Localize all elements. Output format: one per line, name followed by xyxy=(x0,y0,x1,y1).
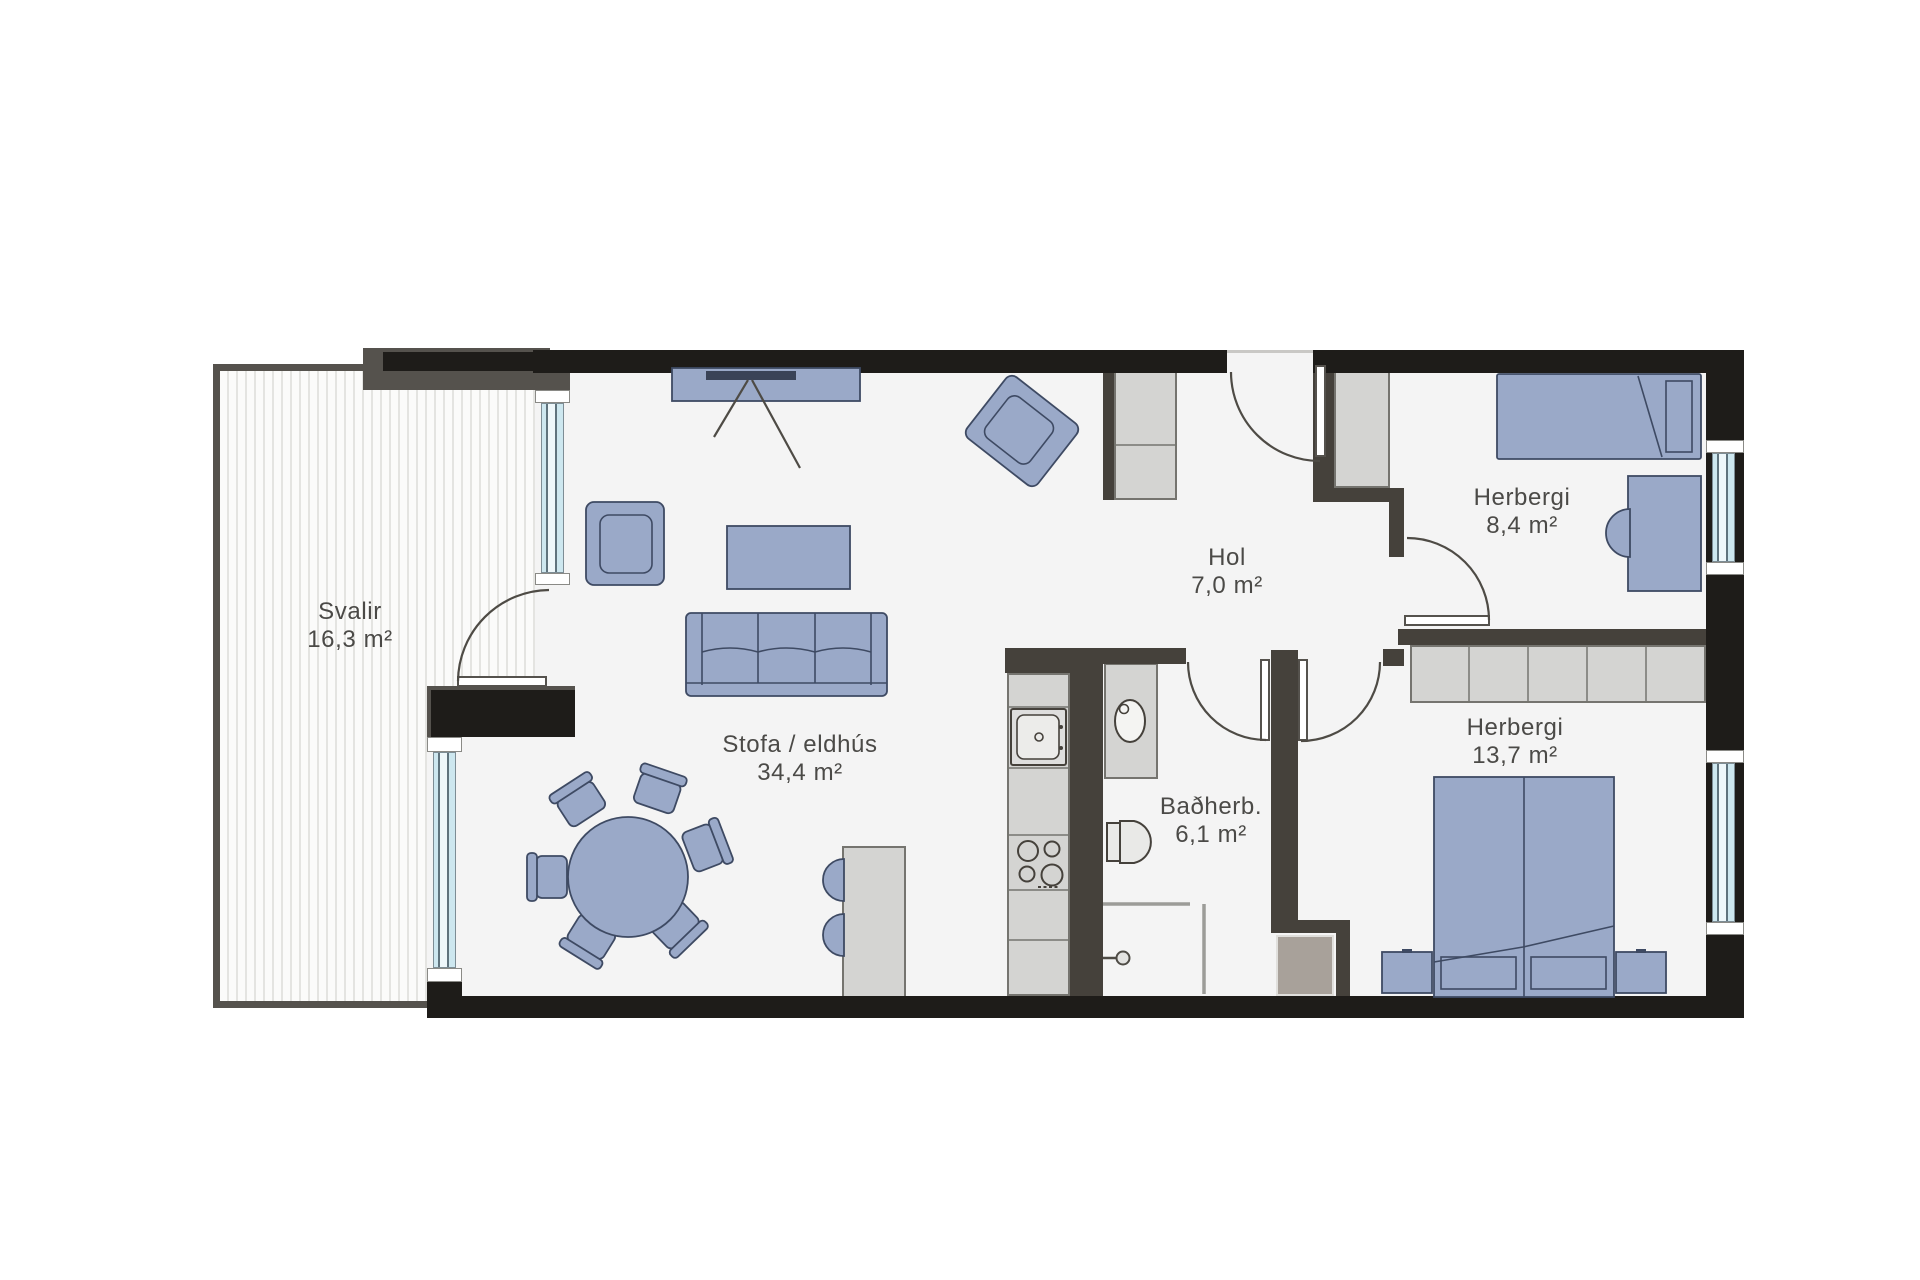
balcony-door xyxy=(458,590,549,686)
dining-set xyxy=(527,762,734,970)
cooktop-icon xyxy=(1018,841,1063,887)
room-name: Hol xyxy=(1191,544,1263,572)
room-label-hol: Hol 7,0 m² xyxy=(1191,544,1263,600)
bathroom-door xyxy=(1188,660,1269,740)
nightstand xyxy=(1616,949,1666,993)
tv-icon xyxy=(706,371,796,380)
room-name: Baðherb. xyxy=(1160,793,1262,821)
room-area: 16,3 m² xyxy=(307,626,393,654)
wash-basin-icon xyxy=(1115,700,1145,742)
tv-bench xyxy=(672,368,860,468)
floor-plan: Svalir 16,3 m² Stofa / eldhús 34,4 m² Ho… xyxy=(0,0,1920,1280)
dining-table xyxy=(568,817,688,937)
desk xyxy=(1628,476,1701,591)
chair-half xyxy=(823,859,844,901)
armchair-angled xyxy=(963,373,1082,490)
room-area: 7,0 m² xyxy=(1191,572,1263,600)
coffee-table xyxy=(727,526,850,589)
room-label-badherbergi: Baðherb. 6,1 m² xyxy=(1160,793,1262,849)
kitchen-sink-icon xyxy=(1011,709,1066,765)
room-area: 13,7 m² xyxy=(1467,742,1564,770)
room-label-svalir: Svalir 16,3 m² xyxy=(307,598,393,654)
dining-chair xyxy=(527,853,567,901)
dining-chair xyxy=(629,762,687,815)
desk-chair xyxy=(1606,509,1630,557)
armchair xyxy=(586,502,664,585)
room-name: Herbergi xyxy=(1467,714,1564,742)
room-label-stofa: Stofa / eldhús 34,4 m² xyxy=(722,731,877,787)
bedroom-small-door xyxy=(1405,538,1489,625)
double-bed xyxy=(1434,777,1614,997)
entrance-door xyxy=(1231,366,1325,461)
room-name: Svalir xyxy=(307,598,393,626)
toilet-icon xyxy=(1107,821,1151,863)
room-area: 6,1 m² xyxy=(1160,821,1262,849)
dining-chair xyxy=(548,770,610,830)
room-area: 8,4 m² xyxy=(1474,512,1571,540)
single-bed xyxy=(1497,374,1701,459)
chair-half xyxy=(823,914,844,956)
room-label-herbergi-large: Herbergi 13,7 m² xyxy=(1467,714,1564,770)
nightstand xyxy=(1382,949,1432,993)
furniture-layer xyxy=(0,0,1920,1280)
room-name: Herbergi xyxy=(1474,484,1571,512)
bedroom-large-door xyxy=(1299,660,1380,741)
shower-icon xyxy=(1103,904,1204,994)
sofa xyxy=(686,613,887,696)
room-label-herbergi-small: Herbergi 8,4 m² xyxy=(1474,484,1571,540)
room-name: Stofa / eldhús xyxy=(722,731,877,759)
room-area: 34,4 m² xyxy=(722,759,877,787)
